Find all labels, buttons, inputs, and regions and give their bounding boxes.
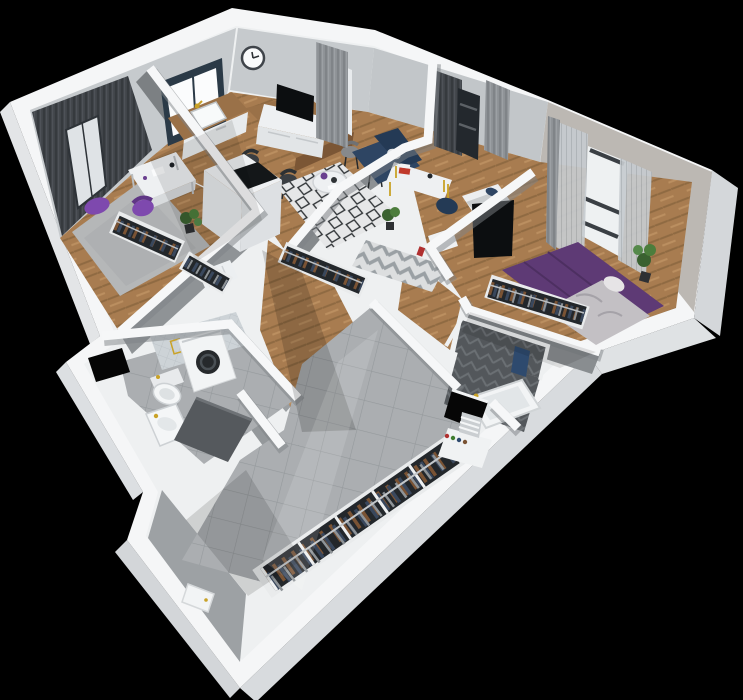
wall-clock [242, 47, 264, 69]
floorplan-render [0, 0, 743, 700]
curtains-living [316, 42, 352, 148]
floorplan-canvas [0, 0, 743, 700]
vase-purple [321, 173, 328, 180]
